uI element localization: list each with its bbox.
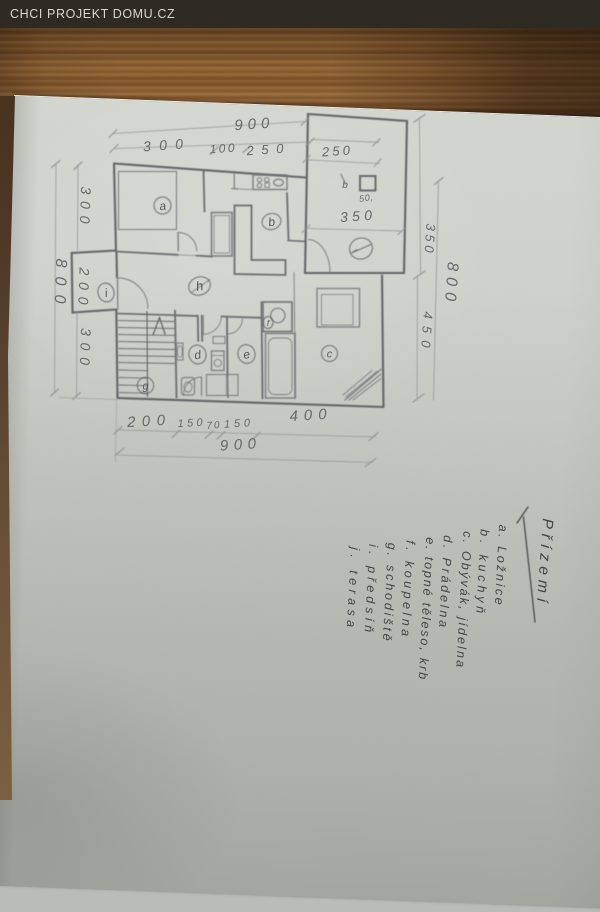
svg-text:50,: 50, <box>358 192 373 204</box>
svg-text:a: a <box>158 199 167 214</box>
svg-text:d: d <box>193 347 202 362</box>
svg-text:800: 800 <box>441 261 461 301</box>
svg-text:a. Ložnice: a. Ložnice <box>492 524 510 605</box>
svg-text:i: i <box>104 286 109 300</box>
svg-text:250: 250 <box>320 142 351 159</box>
svg-text:b. kuchyň: b. kuchyň <box>473 529 491 614</box>
svg-text:Přízemí: Přízemí <box>533 518 556 605</box>
svg-text:100: 100 <box>209 141 235 157</box>
svg-text:b: b <box>267 215 276 230</box>
svg-text:j. terasa: j. terasa <box>344 545 362 628</box>
svg-text:b: b <box>342 180 348 191</box>
svg-text:200: 200 <box>126 412 167 431</box>
svg-text:350: 350 <box>339 207 372 225</box>
svg-text:800: 800 <box>51 258 70 304</box>
svg-text:300: 300 <box>77 186 94 224</box>
svg-text:150: 150 <box>224 417 252 431</box>
svg-text:900: 900 <box>234 115 271 134</box>
svg-text:250: 250 <box>245 141 285 159</box>
svg-text:200: 200 <box>75 266 92 305</box>
svg-text:f. koupelna: f. koupelna <box>398 540 417 637</box>
svg-text:g: g <box>142 381 149 393</box>
svg-text:350: 350 <box>421 223 438 254</box>
svg-text:e. topné těleso, krb: e. topné těleso, krb <box>416 537 437 680</box>
svg-text:i. předsíň: i. předsíň <box>362 544 381 633</box>
svg-text:f: f <box>267 319 270 328</box>
svg-text:d. Prádelna: d. Prádelna <box>436 535 455 628</box>
svg-text:300: 300 <box>77 328 94 366</box>
svg-text:h: h <box>195 278 205 294</box>
svg-text:g. schodiště: g. schodiště <box>380 542 399 641</box>
svg-text:150: 150 <box>177 417 204 431</box>
svg-text:c. Obývák, jídelna: c. Obývák, jídelna <box>453 531 474 668</box>
svg-text:450: 450 <box>418 311 436 349</box>
svg-text:c: c <box>327 349 333 361</box>
svg-text:e: e <box>242 347 251 362</box>
svg-text:400: 400 <box>289 406 328 425</box>
svg-text:300: 300 <box>142 136 183 155</box>
svg-text:900: 900 <box>220 435 258 454</box>
svg-text:70: 70 <box>206 420 220 432</box>
